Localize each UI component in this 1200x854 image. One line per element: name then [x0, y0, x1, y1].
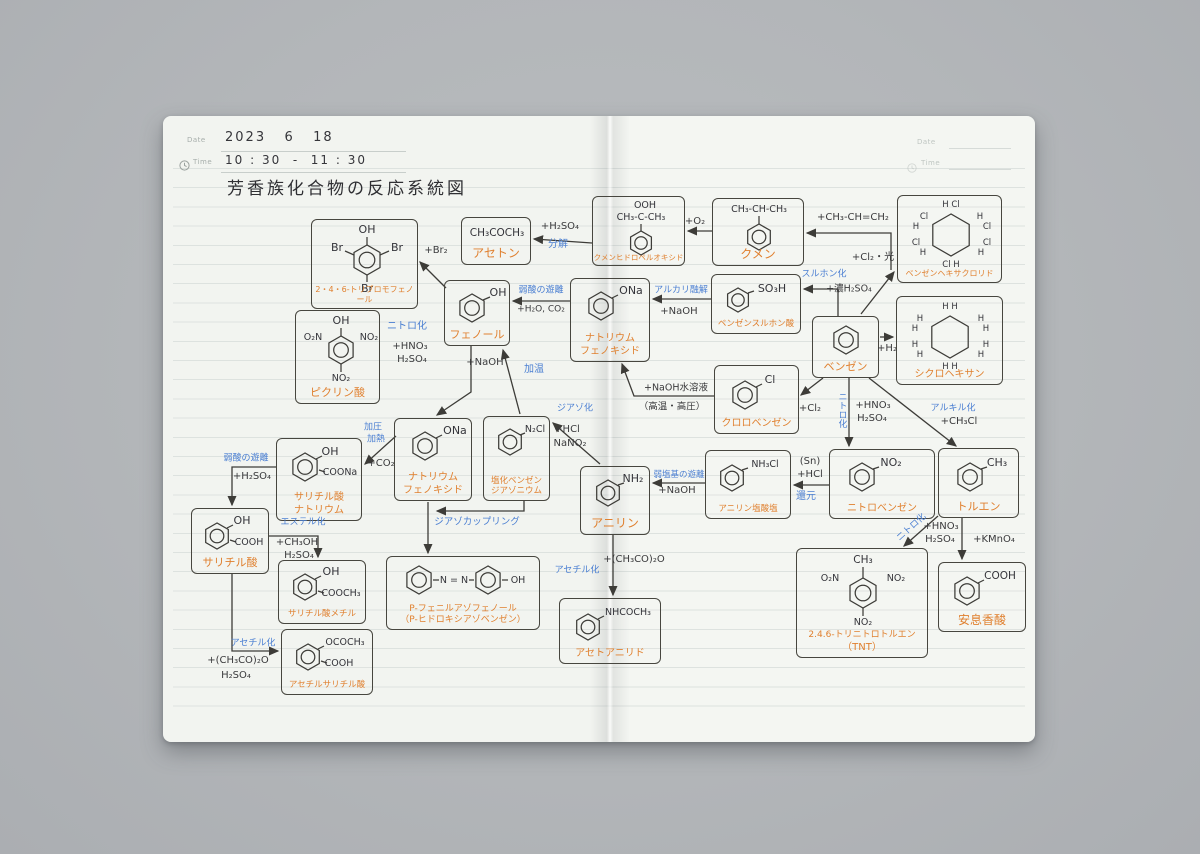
reaction-label: 加圧: [364, 424, 382, 433]
formula-text: H Cl: [942, 200, 959, 210]
ring-circle: [298, 460, 313, 475]
benzene-ring: [933, 214, 969, 256]
reaction-label: +H₂SO₄: [541, 222, 579, 232]
reaction-label: （高温・高圧）: [639, 402, 706, 412]
compound-label-line: ベンゼンスルホン酸: [712, 319, 800, 330]
reaction-label: H₂SO₄: [397, 355, 427, 365]
compound-label-sodium-salicylate: サリチル酸ナトリウム: [277, 492, 361, 517]
bond-line: [612, 295, 618, 298]
benzene-ring: [354, 245, 380, 275]
ring-circle: [725, 471, 739, 485]
formula-text: O₂N: [821, 573, 839, 584]
formula-text: O₂N: [304, 332, 322, 343]
ring-circle: [732, 294, 744, 306]
benzene-ring: [294, 574, 317, 600]
benzene-ring: [460, 294, 484, 322]
reaction-label: アルキル化: [931, 405, 976, 414]
reaction-label: +NaOH: [658, 486, 695, 496]
reaction-label: 分解: [548, 240, 568, 250]
bond-line: [748, 291, 754, 293]
compound-label-line: クメン: [713, 247, 803, 262]
formula-text: SO₃H: [758, 282, 786, 295]
compound-node-p-phenylazophenol: N = NOHP-フェニルアゾフェノール（P-ヒドロキシアゾベンゼン）: [386, 556, 540, 630]
compound-node-sodium-salicylate: OHCOONaサリチル酸ナトリウム: [276, 438, 362, 521]
reaction-label: +NaOH水溶液: [644, 383, 708, 393]
formula-text: NH₂: [623, 472, 644, 485]
benzene-ring: [850, 578, 876, 608]
reaction-label: +KMnO₄: [973, 535, 1015, 545]
formula-text: COOH: [984, 570, 1016, 582]
formula-text: OH: [323, 565, 340, 578]
benzene-ring: [728, 288, 749, 312]
formula-text: H: [983, 340, 989, 350]
bond-line: [345, 251, 354, 255]
benzene-ring: [206, 523, 229, 549]
benzene-ring: [413, 432, 437, 460]
compound-label-line: トルエン: [939, 500, 1018, 514]
reaction-label: ニトロ化: [387, 322, 427, 332]
compound-node-salicylic-acid: OHCOOHサリチル酸: [191, 508, 269, 574]
benzene-ring: [631, 231, 652, 255]
ring-circle: [503, 435, 517, 449]
benzene-ring: [733, 381, 757, 409]
formula-text: H: [983, 324, 989, 334]
compound-label-cumene: クメン: [713, 247, 803, 262]
reaction-label: アルカリ融解: [654, 287, 708, 296]
compound-label-acetylsalicylic-acid: アセチルサリチル酸: [282, 680, 372, 691]
compound-node-benzenesulfonic-acid: SO₃Hベンゼンスルホン酸: [711, 274, 801, 334]
ring-circle: [465, 301, 480, 316]
compound-node-methyl-salicylate: OHCOOCH₃サリチル酸メチル: [278, 560, 366, 624]
desk-background: Date 2023 6 18 Time 10 : 30 - 11 : 30 芳香…: [0, 0, 1200, 854]
compound-label-p-phenylazophenol: P-フェニルアゾフェノール（P-ヒドロキシアゾベンゼン）: [387, 604, 539, 627]
benzene-ring: [958, 463, 982, 491]
formula-text: H: [978, 314, 984, 324]
compound-label-line: フェノール: [445, 328, 509, 342]
compound-node-chlorobenzene: Clクロロベンゼン: [714, 365, 799, 434]
compound-label-line: アセチルサリチル酸: [282, 680, 372, 691]
compound-label-benzene: ベンゼン: [813, 360, 878, 374]
compound-label-line: 安息香酸: [939, 613, 1025, 628]
benzene-ring: [850, 463, 874, 491]
formula-text: Cl: [920, 212, 928, 222]
ring-circle: [581, 620, 595, 634]
benzene-ring: [499, 429, 522, 455]
compound-label-sodium-phenoxide-2: ナトリウムフェノキシド: [395, 472, 471, 497]
compound-node-aniline: NH₂アニリン: [580, 466, 650, 535]
compound-label-phenol: フェノール: [445, 328, 509, 342]
compound-label-line: ナトリウム: [395, 472, 471, 485]
formula-text: OH: [490, 286, 507, 299]
compound-label-line: フェノキシド: [395, 485, 471, 498]
reaction-label: +HNO₃: [855, 401, 890, 411]
reaction-label: ジアゾ化: [557, 405, 593, 414]
formula-text: COOCH₃: [321, 588, 360, 599]
compound-label-chlorobenzene: クロロベンゼン: [715, 418, 798, 431]
compound-label-tribromophenol: 2・4・6-トリブロモフェノール: [312, 285, 417, 305]
compound-node-toluene: CH₃トルエン: [938, 448, 1019, 518]
reaction-label: H₂SO₄: [284, 551, 314, 561]
compound-node-cyclohexane: H HHHHHHHHHH Hシクロヘキサン: [896, 296, 1003, 385]
reaction-label: +Cl₂・光: [852, 253, 894, 263]
compound-node-tnt: CH₃O₂NNO₂NO₂2.4.6-トリニトロトルエン（TNT）: [796, 548, 928, 658]
benzene-ring: [297, 644, 320, 670]
benzene-ring: [597, 480, 620, 506]
compound-label-line: クメンヒドロペルオキシド: [593, 253, 684, 262]
reaction-label: 弱塩基の遊離: [653, 471, 704, 480]
reaction-arrow: [420, 262, 446, 288]
compound-label-picric-acid: ピクリン酸: [296, 386, 379, 400]
compound-label-line: ベンゼン: [813, 360, 878, 374]
compound-node-benzene-hexachloride: H ClClHHClClHClHCl Hベンゼンヘキサクロリド: [897, 195, 1002, 283]
reaction-label: 加温: [524, 365, 544, 375]
bond-line: [756, 384, 762, 387]
compound-label-benzenesulfonic-acid: ベンゼンスルホン酸: [712, 319, 800, 330]
compound-label-line: アセトアニリド: [560, 648, 660, 661]
formula-text: NHCOCH₃: [605, 607, 651, 618]
compound-node-picric-acid: OHO₂NNO₂NO₂ピクリン酸: [295, 310, 380, 404]
formula-text: Br: [391, 241, 404, 254]
reaction-label: ニトロ化: [837, 392, 846, 428]
formula-text: H: [912, 340, 918, 350]
formula-text: ONa: [619, 284, 643, 297]
compound-label-benzoic-acid: 安息香酸: [939, 613, 1025, 628]
formula-text: ONa: [443, 424, 467, 437]
reaction-label: +CH₃OH: [276, 538, 318, 548]
compound-label-line: サリチル酸: [277, 492, 361, 505]
reaction-label: 加熱: [367, 436, 385, 445]
compound-label-line: ナトリウム: [277, 505, 361, 518]
compound-label-cyclohexane: シクロヘキサン: [897, 369, 1002, 382]
formula-text: OH: [359, 223, 376, 236]
bond-line: [315, 576, 321, 579]
compound-label-line: （P-ヒドロキシアゾベンゼン）: [387, 615, 539, 626]
bond-line: [436, 435, 442, 438]
bond-line: [318, 646, 324, 649]
compound-label-aniline: アニリン: [581, 516, 649, 531]
reaction-label: +(CH₃CO)₂O: [207, 656, 268, 666]
compound-node-benzenediazonium-chloride: N₂Cl塩化ベンゼンジアゾニウム: [483, 416, 550, 501]
ring-circle: [210, 529, 224, 543]
formula-text: Br: [331, 241, 344, 254]
reaction-label: +H₂SO₄: [233, 472, 271, 482]
reaction-label: +H₂: [877, 344, 897, 354]
compound-node-benzene: ベンゼン: [812, 316, 879, 378]
compound-node-nitrobenzene: NO₂ニトロベンゼン: [829, 449, 935, 519]
compound-label-line: アニリン塩酸塩: [706, 504, 790, 515]
bond-line: [873, 467, 879, 469]
compound-label-line: アニリン: [581, 516, 649, 531]
ring-circle: [963, 470, 978, 485]
compound-node-sodium-phenoxide-1: ONaナトリウムフェノキシド: [570, 278, 650, 362]
compound-label-line: シクロヘキサン: [897, 369, 1002, 382]
formula-text: H: [913, 222, 919, 232]
compound-label-line: 2・4・6-トリブロモフェノール: [312, 285, 417, 305]
reaction-label: +CO₂: [367, 459, 394, 469]
formula-text: Cl: [765, 373, 776, 386]
ring-circle: [855, 585, 871, 601]
reaction-label: ジアゾカップリング: [434, 517, 520, 527]
benzene-ring: [476, 566, 500, 594]
formula-text: COOH: [325, 658, 354, 669]
compound-node-acetylsalicylic-acid: OCOCH₃COOHアセチルサリチル酸: [281, 629, 373, 695]
formula-text: NO₂: [880, 456, 901, 469]
ring-circle: [855, 470, 870, 485]
reaction-label: H₂SO₄: [857, 414, 887, 424]
ring-circle: [594, 299, 609, 314]
reaction-label: +H₂O, CO₂: [517, 306, 565, 315]
formula-text: CH₃-C-CH₃: [617, 212, 666, 223]
bond-line: [978, 580, 984, 583]
ring-circle: [960, 584, 975, 599]
compound-label-line: ピクリン酸: [296, 386, 379, 400]
formula-text: H: [920, 248, 926, 258]
benzene-ring: [329, 336, 353, 364]
compound-label-line: ナトリウム: [571, 333, 649, 346]
formula-text: CH₃COCH₃: [470, 227, 524, 239]
compound-label-sodium-phenoxide-1: ナトリウムフェノキシド: [571, 333, 649, 358]
compound-label-line: （TNT）: [797, 642, 927, 655]
reaction-label: +HCl: [554, 425, 580, 435]
formula-text: H: [912, 324, 918, 334]
formula-text: OOH: [634, 200, 656, 211]
formula-text: NH₃Cl: [751, 459, 778, 470]
reaction-label: +O₂: [685, 217, 705, 227]
reaction-label: 還元: [796, 492, 816, 502]
compound-label-line: フェノキシド: [571, 346, 649, 359]
reaction-label: +Br₂: [424, 246, 447, 256]
reaction-label: (Sn): [800, 457, 821, 467]
reaction-label: +CH₃Cl: [941, 417, 978, 427]
reaction-label: +HNO₃: [923, 522, 958, 532]
reaction-label: 弱酸の遊離: [518, 287, 563, 296]
benzene-ring: [834, 326, 858, 354]
reaction-label: H₂SO₄: [221, 671, 251, 681]
compound-node-benzoic-acid: COOH安息香酸: [938, 562, 1026, 632]
formula-text: OH: [322, 445, 339, 458]
ring-circle: [301, 650, 315, 664]
compound-label-salicylic-acid: サリチル酸: [192, 556, 268, 570]
reaction-label: H₂SO₄: [925, 535, 955, 545]
benzene-ring: [407, 566, 431, 594]
reaction-label: NaNO₂: [554, 439, 587, 449]
reaction-label: アセチル化: [231, 640, 276, 649]
compound-label-benzene-hexachloride: ベンゼンヘキサクロリド: [898, 269, 1001, 279]
reaction-label: +Cl₂: [799, 404, 821, 414]
compound-label-acetone: アセトン: [462, 246, 530, 261]
benzene-ring: [577, 614, 600, 640]
compound-node-phenol: OHフェノール: [444, 280, 510, 346]
ring-circle: [334, 343, 349, 358]
ring-circle: [738, 388, 753, 403]
compound-label-tnt: 2.4.6-トリニトロトルエン（TNT）: [797, 630, 927, 654]
formula-text: CH₃: [987, 456, 1007, 469]
reaction-arrow: [801, 378, 823, 395]
formula-text: CH₃: [853, 554, 872, 566]
formula-text: N₂Cl: [525, 424, 545, 435]
reaction-label: アセチル化: [555, 567, 600, 576]
formula-text: H: [978, 350, 984, 360]
compound-label-line: サリチル酸: [192, 556, 268, 570]
compound-label-cumene-hydroperoxide: クメンヒドロペルオキシド: [593, 253, 684, 262]
ring-circle: [359, 252, 375, 268]
formula-text: H: [917, 350, 923, 360]
compound-node-tribromophenol: OHBrBrBr2・4・6-トリブロモフェノール: [311, 219, 418, 309]
benzene-ring: [955, 577, 979, 605]
compound-label-line: クロロベンゼン: [715, 418, 798, 431]
formula-text: COONa: [323, 467, 358, 478]
reaction-label: +NaOH: [466, 358, 503, 368]
ring-circle: [418, 439, 433, 454]
reaction-label: +NaOH: [660, 307, 697, 317]
benzene-ring: [293, 453, 317, 481]
formula-text: N = N: [440, 575, 468, 586]
formula-text: OH: [511, 575, 526, 586]
formula-text: COOH: [235, 537, 264, 548]
formula-text: OCOCH₃: [325, 637, 364, 648]
formula-text: Cl: [912, 238, 920, 248]
compound-node-acetanilide: NHCOCH₃アセトアニリド: [559, 598, 661, 664]
compound-label-line: ジアゾニウム: [484, 486, 549, 497]
formula-text: NO₂: [360, 332, 378, 343]
compound-node-aniline-hydrochloride: NH₃Clアニリン塩酸塩: [705, 450, 791, 519]
bond-line: [380, 251, 389, 255]
reaction-label: +CH₃-CH=CH₂: [817, 213, 889, 223]
formula-text: Cl: [983, 238, 991, 248]
reaction-label: エステル化: [280, 519, 325, 528]
ring-circle: [412, 573, 427, 588]
reaction-arrow: [437, 501, 524, 511]
benzene-ring: [932, 316, 968, 358]
reaction-arrows: [0, 0, 1200, 854]
reaction-label: スルホン化: [801, 271, 846, 280]
compound-label-toluene: トルエン: [939, 500, 1018, 514]
compound-label-line: 塩化ベンゼン: [484, 476, 549, 487]
formula-text: OH: [234, 514, 251, 527]
formula-text: NO₂: [332, 373, 351, 384]
compound-label-benzenediazonium-chloride: 塩化ベンゼンジアゾニウム: [484, 476, 549, 497]
bond-line: [598, 616, 604, 619]
reaction-label: +HCl: [797, 470, 823, 480]
benzene-ring: [589, 292, 613, 320]
compound-node-cumene: CH₃-CH-CH₃クメン: [712, 198, 804, 266]
compound-node-acetone: CH₃COCH₃アセトン: [461, 217, 531, 265]
compound-label-line: サリチル酸メチル: [279, 609, 365, 620]
formula-text: H H: [942, 302, 958, 312]
reaction-arrow: [503, 350, 520, 414]
compound-label-line: P-フェニルアゾフェノール: [387, 604, 539, 615]
ring-circle: [481, 573, 496, 588]
formula-text: OH: [333, 314, 350, 327]
reaction-label: 弱酸の遊離: [223, 455, 268, 464]
formula-text: H: [977, 212, 983, 222]
formula-text: CH₃-CH-CH₃: [731, 204, 787, 215]
benzene-ring: [721, 465, 744, 491]
reaction-label: +濃H₂SO₄: [826, 284, 872, 294]
compound-node-sodium-phenoxide-2: ONaナトリウムフェノキシド: [394, 418, 472, 501]
reaction-label: +(CH₃CO)₂O: [603, 555, 664, 565]
compound-label-line: アセトン: [462, 246, 530, 261]
compound-label-line: 2.4.6-トリニトロトルエン: [797, 630, 927, 641]
compound-label-methyl-salicylate: サリチル酸メチル: [279, 609, 365, 620]
formula-text: NO₂: [854, 617, 873, 628]
compound-label-acetanilide: アセトアニリド: [560, 648, 660, 661]
ring-circle: [839, 333, 854, 348]
compound-label-line: ベンゼンヘキサクロリド: [898, 269, 1001, 279]
ring-circle: [752, 230, 766, 244]
formula-text: H: [978, 248, 984, 258]
reaction-label: +HNO₃: [392, 342, 427, 352]
formula-text: H: [917, 314, 923, 324]
formula-text: NO₂: [887, 573, 906, 584]
ring-circle: [601, 486, 615, 500]
compound-node-cumene-hydroperoxide: OOHCH₃-C-CH₃クメンヒドロペルオキシド: [592, 196, 685, 266]
formula-text: Cl: [983, 222, 991, 232]
bond-line: [742, 468, 748, 470]
ring-circle: [635, 237, 647, 249]
compound-label-aniline-hydrochloride: アニリン塩酸塩: [706, 504, 790, 515]
bond-line: [227, 525, 233, 528]
ring-circle: [298, 580, 312, 594]
